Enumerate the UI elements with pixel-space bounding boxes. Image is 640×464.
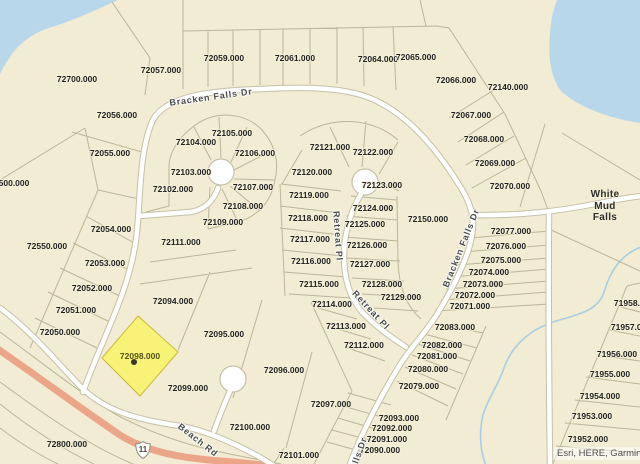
parcel-label: 72070.000 bbox=[490, 181, 530, 191]
parcel-label: 72083.000 bbox=[435, 322, 475, 332]
parcel-label: 72055.000 bbox=[90, 148, 130, 158]
parcel-label: 72114.000 bbox=[312, 299, 352, 309]
parcel-label: 72061.000 bbox=[275, 53, 315, 63]
parcel-label: 72102.000 bbox=[153, 184, 193, 194]
parcel-label: 72079.000 bbox=[399, 381, 439, 391]
parcel-label: 72072.000 bbox=[455, 290, 495, 300]
parcel-label: 72056.000 bbox=[97, 110, 137, 120]
parcel-label: 72125.000 bbox=[345, 219, 385, 229]
parcel-label: 72096.000 bbox=[264, 365, 304, 375]
parcel-label: 72095.000 bbox=[204, 329, 244, 339]
highway-shield: 11 bbox=[135, 441, 151, 459]
parcel-label: 72073.000 bbox=[463, 279, 503, 289]
parcel-label: 72700.000 bbox=[57, 74, 97, 84]
parcel-label: 71956.000 bbox=[597, 349, 637, 359]
parcel-label: 72071.000 bbox=[450, 301, 490, 311]
map-attribution: Esri, HERE, Garmin, IN bbox=[554, 447, 640, 460]
parcel-label: 72101.000 bbox=[279, 450, 319, 460]
parcel-label: 72065.000 bbox=[396, 52, 436, 62]
parcel-label: 72080.000 bbox=[408, 364, 448, 374]
parcel-label: 72059.000 bbox=[204, 53, 244, 63]
parcel-label: 72800.000 bbox=[47, 439, 87, 449]
parcel-label: 72111.000 bbox=[161, 237, 200, 247]
parcel-label: 72051.000 bbox=[56, 305, 96, 315]
parcel-label: 72068.000 bbox=[464, 134, 504, 144]
parcel-label: 72057.000 bbox=[141, 65, 181, 75]
parcel-label: 71954.000 bbox=[580, 391, 620, 401]
parcel-label: 72127.000 bbox=[350, 259, 390, 269]
parcel-label: 72129.000 bbox=[381, 292, 421, 302]
parcel-label: 72108.000 bbox=[223, 201, 263, 211]
parcel-label: 72124.000 bbox=[353, 203, 393, 213]
parcel-label: 72104.000 bbox=[176, 137, 216, 147]
parcel-label: 72082.000 bbox=[422, 340, 462, 350]
parcel-label: 72128.000 bbox=[362, 279, 402, 289]
parcel-label: 72126.000 bbox=[347, 240, 387, 250]
parcel-label: 72100.000 bbox=[230, 422, 270, 432]
parcel-label: 72117.000 bbox=[290, 234, 330, 244]
parcel-label: 72092.000 bbox=[372, 423, 412, 433]
selected-parcel-label: 72098.000 bbox=[120, 351, 160, 361]
parcel-label: 72097.000 bbox=[311, 399, 351, 409]
parcel-label: 72067.000 bbox=[451, 110, 491, 120]
highway-number: 11 bbox=[139, 445, 148, 454]
lake-top-left bbox=[0, 0, 118, 74]
parcel-label: 72107.000 bbox=[233, 182, 273, 192]
parcel-label: 72075.000 bbox=[481, 255, 521, 265]
parcel-label: 72103.000 bbox=[171, 167, 211, 177]
parcel-label: 72093.000 bbox=[379, 413, 419, 423]
map-canvas[interactable]: 72700.00072057.00072059.00072061.0007206… bbox=[0, 0, 640, 464]
parcel-label: 72081.000 bbox=[417, 351, 457, 361]
parcel-label: 72076.000 bbox=[486, 241, 526, 251]
parcel-label: 71953.000 bbox=[572, 411, 612, 421]
water-bodies bbox=[0, 0, 640, 123]
parcel-label: 71957.000 bbox=[611, 322, 640, 332]
parcel-label: 72115.000 bbox=[299, 279, 339, 289]
parcel-label: 72112.000 bbox=[344, 340, 384, 350]
parcel-label: 500.000 bbox=[0, 178, 29, 188]
place-label-line1: White Mud bbox=[588, 189, 623, 212]
lake-top-right bbox=[549, 0, 640, 123]
parcel-label: 72099.000 bbox=[168, 383, 208, 393]
parcel-label: 72118.000 bbox=[288, 213, 328, 223]
parcel-label: 72122.000 bbox=[353, 147, 393, 157]
parcel-label: 71952.000 bbox=[568, 434, 608, 444]
parcel-label: 72064.000 bbox=[358, 54, 398, 64]
parcel-label: 72050.000 bbox=[40, 327, 80, 337]
parcel-label: 72121.000 bbox=[310, 142, 350, 152]
parcel-label: 72120.000 bbox=[292, 167, 332, 177]
parcel-label: 72094.000 bbox=[153, 296, 193, 306]
place-label-line2: Falls bbox=[588, 212, 623, 224]
parcel-label: 72116.000 bbox=[291, 256, 331, 266]
parcel-label: 72106.000 bbox=[235, 148, 275, 158]
parcel-label: 72550.000 bbox=[27, 241, 67, 251]
parcel-label: 72053.000 bbox=[85, 258, 125, 268]
parcel-label: 72054.000 bbox=[91, 224, 131, 234]
parcel-label: 72077.000 bbox=[491, 226, 531, 236]
parcel-label: 72074.000 bbox=[469, 267, 509, 277]
parcel-label: 72140.000 bbox=[488, 82, 528, 92]
parcel-label: 72150.000 bbox=[408, 214, 448, 224]
parcel-label: 72052.000 bbox=[72, 283, 112, 293]
place-label-white-mud-falls: White Mud Falls bbox=[588, 189, 623, 224]
parcel-label: 72119.000 bbox=[289, 190, 329, 200]
parcel-label: 72066.000 bbox=[436, 75, 476, 85]
parcel-label: 72105.000 bbox=[212, 128, 252, 138]
parcel-label: 71955.000 bbox=[590, 369, 630, 379]
parcel-label: 72109.000 bbox=[203, 217, 243, 227]
parcel-label: 71958.000 bbox=[614, 298, 640, 308]
parcel-label: 72091.000 bbox=[367, 434, 407, 444]
parcel-label: 72123.000 bbox=[362, 180, 402, 190]
parcel-label: 72069.000 bbox=[475, 158, 515, 168]
parcel-label: 72113.000 bbox=[326, 321, 366, 331]
